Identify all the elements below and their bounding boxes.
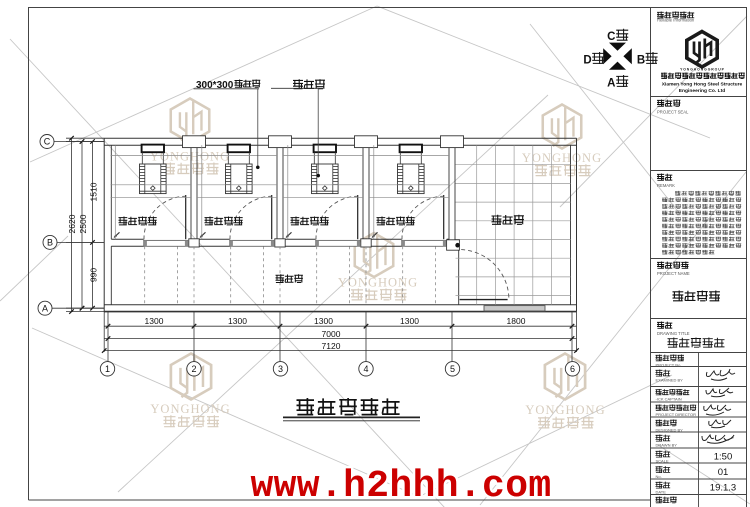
svg-text:B: B: [47, 238, 53, 248]
svg-text:7120: 7120: [322, 341, 341, 351]
svg-text:DESIGNED BY: DESIGNED BY: [656, 427, 684, 432]
svg-text:C: C: [44, 137, 51, 147]
svg-text:EXAMINED BY: EXAMINED BY: [656, 378, 684, 383]
svg-text:DRAWING TITLE: DRAWING TITLE: [657, 331, 690, 336]
svg-text:Y O N G H O N G G R O U P: Y O N G H O N G G R O U P: [680, 68, 725, 72]
svg-text:1300: 1300: [314, 316, 333, 326]
svg-text:2: 2: [191, 364, 196, 374]
svg-text:1300: 1300: [228, 316, 247, 326]
svg-text:Reliable Information: Reliable Information: [657, 18, 695, 23]
svg-text:SCALE: SCALE: [656, 459, 669, 464]
svg-text:2500: 2500: [78, 214, 88, 233]
svg-text:990: 990: [89, 268, 99, 282]
svg-text:3: 3: [278, 364, 283, 374]
svg-text:1800: 1800: [507, 316, 526, 326]
svg-text:DATE: DATE: [656, 490, 667, 495]
svg-text:PROJECT NAME: PROJECT NAME: [657, 271, 690, 276]
svg-text:C: C: [607, 31, 615, 43]
svg-text:300*300: 300*300: [196, 80, 234, 91]
svg-text:1300: 1300: [400, 316, 419, 326]
svg-text:7000: 7000: [322, 329, 341, 339]
svg-text:4: 4: [363, 364, 368, 374]
svg-text:6: 6: [570, 364, 575, 374]
svg-text:5: 5: [450, 364, 455, 374]
svg-text:-ICK CAPTAIN: -ICK CAPTAIN: [656, 396, 682, 401]
svg-text:1: 1: [105, 364, 110, 374]
svg-text:PROJECT DIRECTOR: PROJECT DIRECTOR: [656, 412, 697, 417]
svg-text:1:50: 1:50: [714, 452, 733, 463]
svg-text:YONGHONG: YONGHONG: [525, 403, 605, 417]
svg-text:REMARK: REMARK: [657, 183, 675, 188]
svg-text:PROJECT No.: PROJECT No.: [656, 362, 682, 367]
svg-text:B: B: [637, 54, 645, 66]
svg-text:YONGHONG: YONGHONG: [522, 151, 602, 165]
svg-text:PROJECT SEAL: PROJECT SEAL: [657, 110, 689, 115]
svg-text:DRAWN BY: DRAWN BY: [656, 443, 678, 448]
svg-text:A: A: [607, 77, 615, 89]
svg-text:2620: 2620: [67, 214, 77, 233]
svg-text:D: D: [583, 54, 591, 66]
svg-text:1510: 1510: [89, 182, 99, 201]
svg-text:Xiamen Yong Hong Steel Structu: Xiamen Yong Hong Steel Structure: [662, 82, 743, 88]
svg-text:01: 01: [718, 467, 729, 478]
svg-text:19.1.3: 19.1.3: [710, 483, 736, 494]
svg-text:www.h2hhh.com: www.h2hhh.com: [251, 465, 552, 507]
svg-text:Engineering Co. Ltd: Engineering Co. Ltd: [679, 88, 725, 94]
svg-text:YONGHONG: YONGHONG: [150, 402, 230, 416]
svg-text:A: A: [42, 303, 48, 313]
svg-text:1300: 1300: [145, 316, 164, 326]
svg-text:No.: No.: [656, 474, 662, 479]
